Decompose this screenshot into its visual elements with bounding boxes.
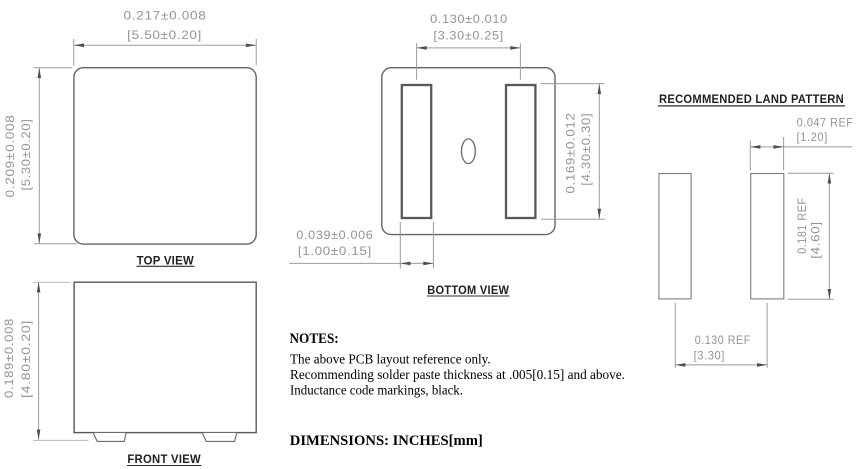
svg-text:0.217±0.008: 0.217±0.008 (124, 8, 207, 22)
svg-text:BOTTOM VIEW: BOTTOM VIEW (427, 283, 509, 297)
svg-text:DIMENSIONS: INCHES[mm]: DIMENSIONS: INCHES[mm] (290, 433, 483, 449)
svg-text:[1.00±0.15]: [1.00±0.15] (298, 244, 372, 258)
svg-text:Recommending solder paste thic: Recommending solder paste thickness at .… (290, 367, 625, 382)
svg-text:0.181 REF: 0.181 REF (795, 197, 809, 253)
svg-text:[4.60]: [4.60] (808, 221, 822, 259)
svg-text:[1.20]: [1.20] (797, 130, 828, 144)
svg-text:[3.30]: [3.30] (694, 349, 725, 363)
svg-text:[5.30±0.20]: [5.30±0.20] (19, 119, 33, 191)
svg-text:[5.50±0.20]: [5.50±0.20] (127, 28, 202, 42)
svg-text:0.130 REF: 0.130 REF (695, 333, 751, 347)
svg-text:[4.80±0.20]: [4.80±0.20] (19, 320, 33, 398)
svg-text:0.209±0.008: 0.209±0.008 (3, 114, 17, 197)
svg-text:[4.30±0.30]: [4.30±0.30] (579, 113, 593, 186)
svg-text:0.189±0.008: 0.189±0.008 (2, 318, 16, 398)
svg-text:0.039±0.006: 0.039±0.006 (296, 228, 373, 242)
svg-text:The above PCB layout reference: The above PCB layout reference only. (290, 351, 491, 366)
svg-text:FRONT VIEW: FRONT VIEW (127, 452, 201, 466)
svg-text:0.047 REF: 0.047 REF (797, 115, 854, 129)
svg-text:0.130±0.010: 0.130±0.010 (430, 12, 508, 26)
svg-text:NOTES:: NOTES: (290, 331, 339, 347)
svg-text:TOP VIEW: TOP VIEW (137, 254, 195, 268)
svg-text:RECOMMENDED LAND PATTERN: RECOMMENDED LAND PATTERN (659, 92, 844, 106)
svg-text:[3.30±0.25]: [3.30±0.25] (433, 29, 503, 43)
svg-text:0.169±0.012: 0.169±0.012 (564, 113, 578, 194)
svg-text:Inductance code markings, blac: Inductance code markings, black. (290, 383, 463, 398)
